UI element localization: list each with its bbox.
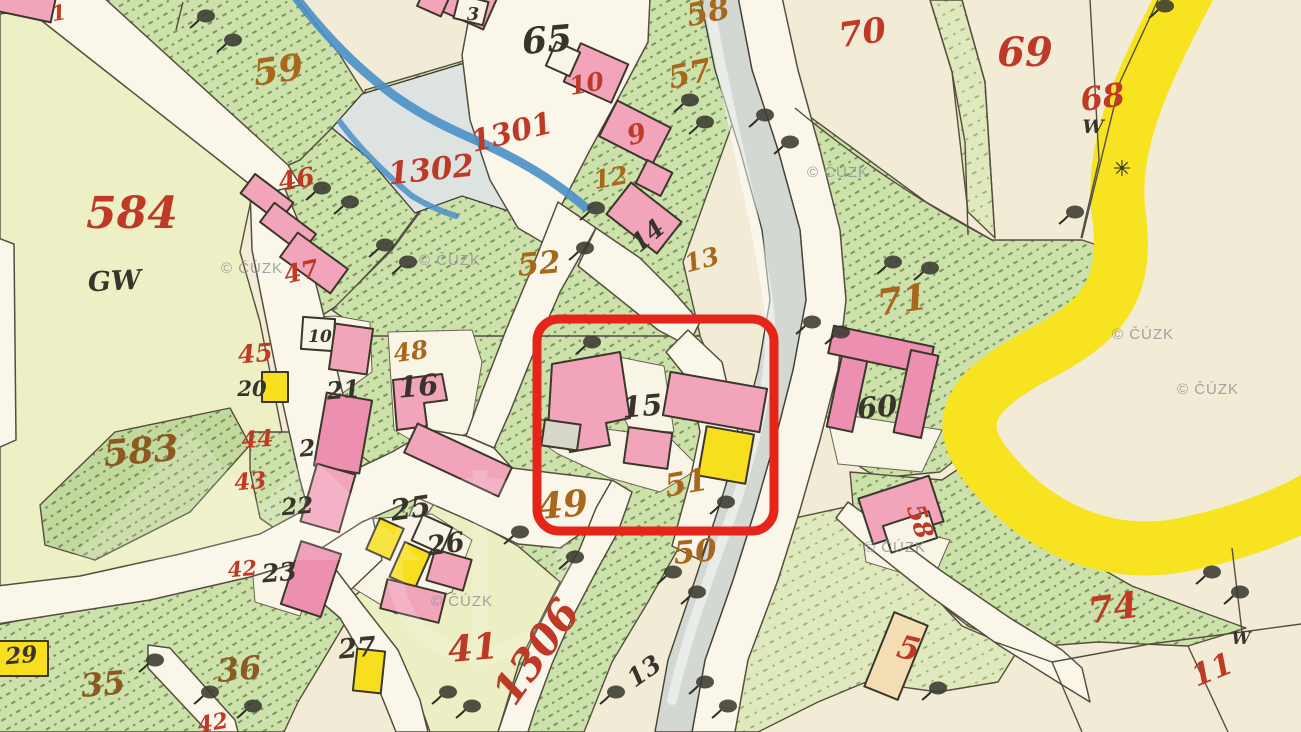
parcel-number-label: 36 xyxy=(215,648,263,690)
parcel-number-label: 21 xyxy=(324,374,361,406)
parcel-number-label: 46 xyxy=(276,162,317,198)
parcel-number-label: 22 xyxy=(279,492,314,522)
building-21 xyxy=(329,324,373,375)
parcel-number-label: 3 xyxy=(467,4,480,25)
road-tan-left-edge xyxy=(0,238,16,448)
parcel-number-label: 42 xyxy=(227,555,258,582)
parcel-number-label: 71 xyxy=(875,276,930,325)
cadastral-map-canvas: 5845946474544434242130113021306419107069… xyxy=(0,0,1301,732)
parcel-number-label: 25 xyxy=(387,488,433,527)
cuzk-copyright-watermark: © ČÚZK xyxy=(807,164,869,181)
building-shed-grey xyxy=(541,420,580,451)
parcel-number-label: 43 xyxy=(233,467,267,497)
parcel-number-label: 68 xyxy=(1078,75,1127,119)
parcel-number-label: GW xyxy=(87,264,145,298)
parcel-number-label: 69 xyxy=(997,29,1053,76)
parcel-number-label: 29 xyxy=(3,641,38,671)
building-15-middle xyxy=(624,427,673,469)
map-symbols-layer: ✳ xyxy=(1113,156,1131,181)
cuzk-copyright-watermark: © ČÚZK xyxy=(431,593,493,610)
parcel-number-label: 26 xyxy=(424,527,467,563)
parcel-number-label: 74 xyxy=(1086,584,1141,633)
parcel-number-label: 15 xyxy=(621,387,664,424)
parcel-number-label: 16 xyxy=(397,367,440,404)
parcel-number-label: 41 xyxy=(446,625,500,671)
parcel-number-label: 10 xyxy=(308,327,332,347)
parcel-number-label: W xyxy=(1082,116,1105,138)
historic-cadastral-map: 5845946474544434242130113021306419107069… xyxy=(0,0,1301,732)
cuzk-copyright-watermark: © ČÚZK xyxy=(1112,326,1174,343)
cuzk-copyright-watermark: © ČÚZK xyxy=(1177,381,1239,398)
cuzk-copyright-watermark: © ČÚZK xyxy=(864,539,926,556)
parcel-number-label: 10 xyxy=(567,66,607,101)
parcel-number-label: 584 xyxy=(86,188,178,239)
parcel-number-label: 45 xyxy=(237,338,274,370)
parcel-number-label: 42 xyxy=(195,708,230,732)
parcel-number-label: 50 xyxy=(672,532,719,572)
parcel-number-label: 23 xyxy=(260,557,298,589)
parcel-number-label: 59 xyxy=(251,46,306,95)
parcel-number-label: 27 xyxy=(336,631,377,665)
parcel-number-label: 35 xyxy=(79,663,127,705)
parcel-number-label: 583 xyxy=(102,427,181,475)
parcel-number-label: 70 xyxy=(836,10,889,56)
parcel-number-label: 44 xyxy=(240,425,274,455)
parcel-number-label: 48 xyxy=(392,335,430,369)
parcel-number-label: 60 xyxy=(856,388,899,425)
parcel-number-label: 51 xyxy=(662,462,711,505)
parcel-number-label: 12 xyxy=(591,160,630,195)
parcel-number-label: 65 xyxy=(520,17,574,63)
parcel-number-label: 52 xyxy=(516,244,562,284)
parcel-number-label: W xyxy=(1231,629,1252,649)
parcel-number-label: 20 xyxy=(236,376,267,401)
cuzk-copyright-watermark: © ČÚZK xyxy=(221,260,283,277)
parcel-number-label: 2 xyxy=(297,434,316,462)
sun-symbol-icon: ✳ xyxy=(1113,156,1131,181)
cuzk-copyright-watermark: © ČÚZK xyxy=(419,252,481,269)
